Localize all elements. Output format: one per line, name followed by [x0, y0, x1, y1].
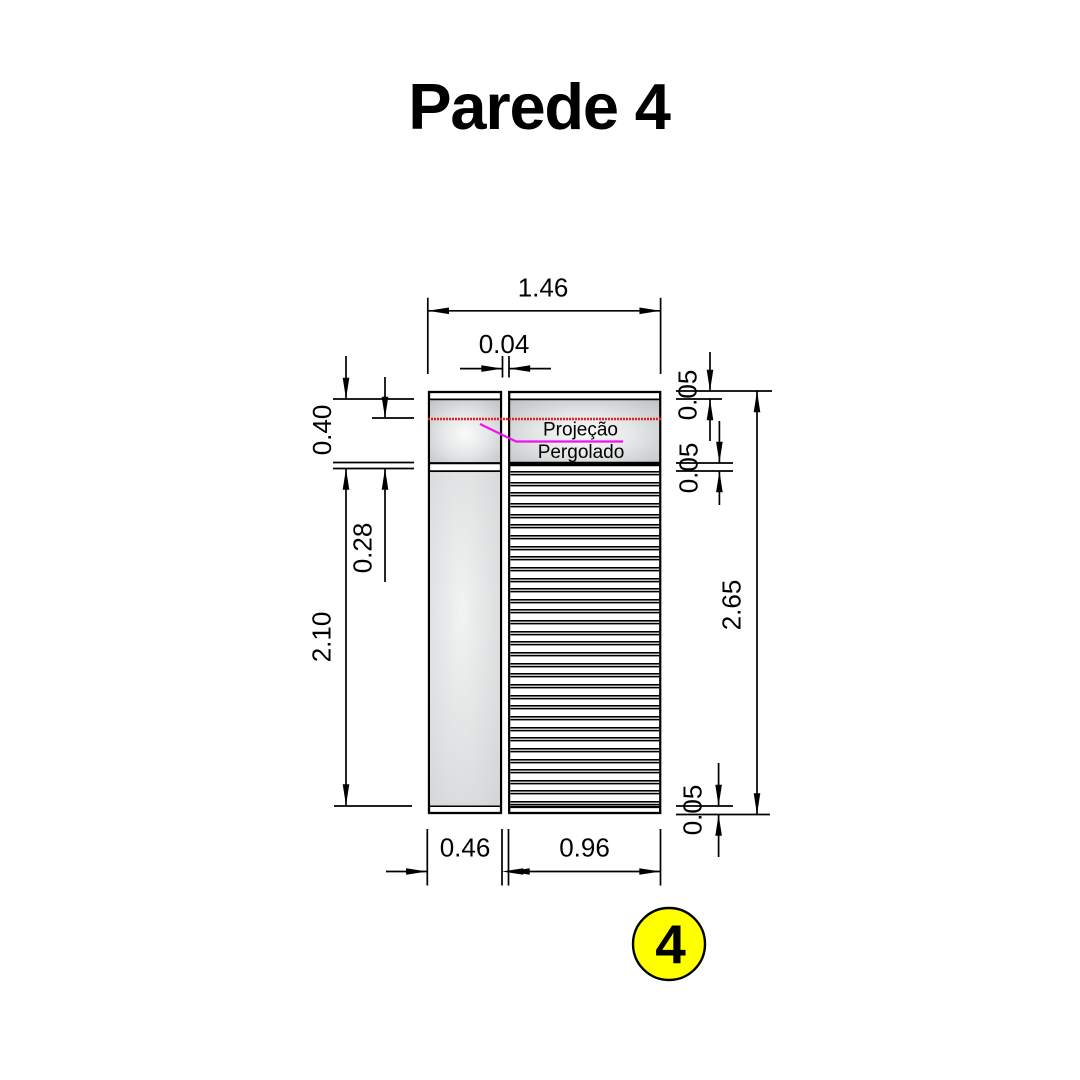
svg-text:2.10: 2.10 [306, 612, 336, 663]
svg-text:0.05: 0.05 [673, 443, 703, 494]
svg-text:0.28: 0.28 [347, 523, 377, 574]
svg-text:Parede 4: Parede 4 [408, 70, 670, 143]
svg-text:0.40: 0.40 [307, 405, 337, 456]
svg-text:Projeção: Projeção [543, 419, 618, 440]
svg-text:Pergolado: Pergolado [538, 442, 625, 463]
svg-text:0.05: 0.05 [672, 370, 702, 421]
svg-text:1.46: 1.46 [518, 273, 569, 303]
svg-text:0.05: 0.05 [677, 785, 707, 836]
svg-text:2.65: 2.65 [716, 580, 746, 631]
svg-text:0.46: 0.46 [440, 833, 491, 863]
svg-text:4: 4 [655, 913, 686, 975]
svg-text:0.96: 0.96 [559, 833, 610, 863]
svg-text:0.04: 0.04 [479, 329, 530, 359]
